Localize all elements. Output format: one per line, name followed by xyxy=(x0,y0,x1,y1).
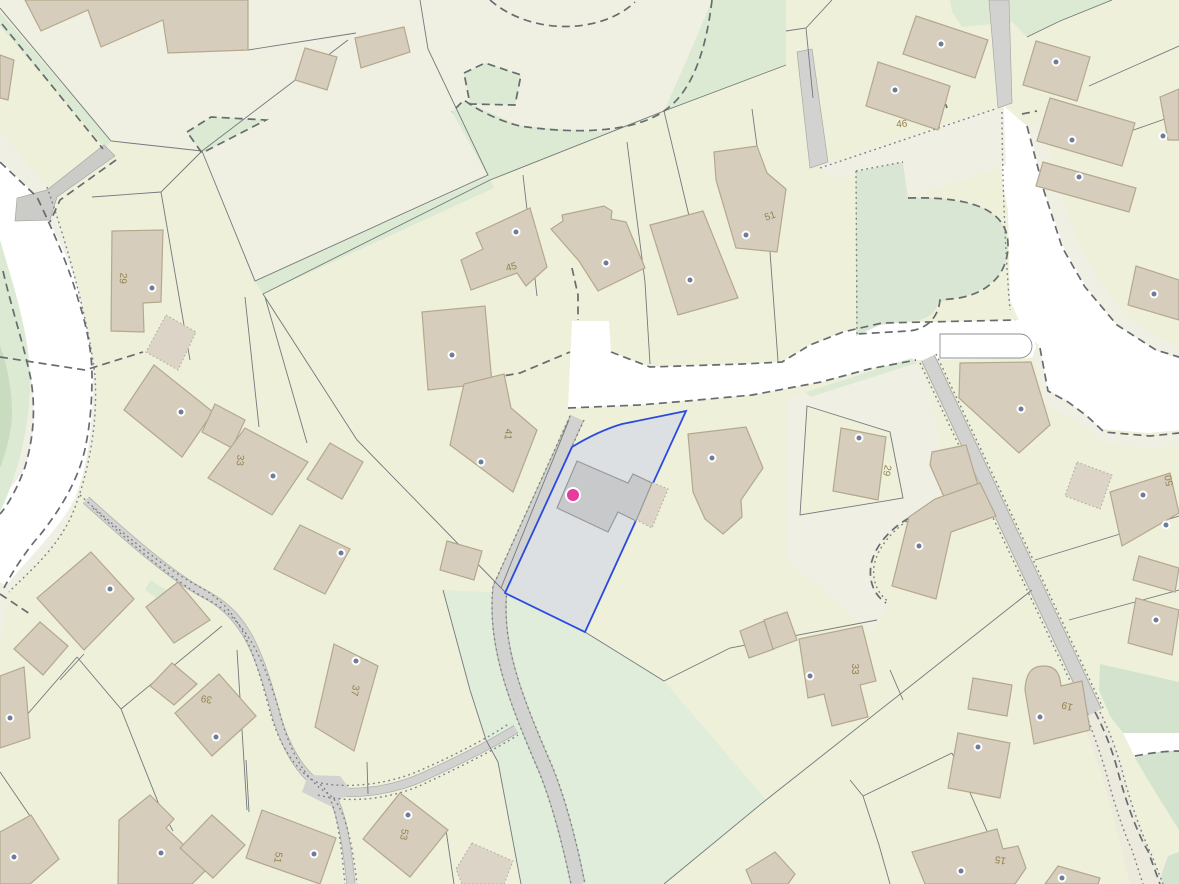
svg-text:33: 33 xyxy=(849,663,860,675)
svg-text:33: 33 xyxy=(233,454,245,466)
svg-text:41: 41 xyxy=(501,428,513,440)
svg-text:46: 46 xyxy=(896,119,908,131)
svg-text:29: 29 xyxy=(116,272,128,284)
